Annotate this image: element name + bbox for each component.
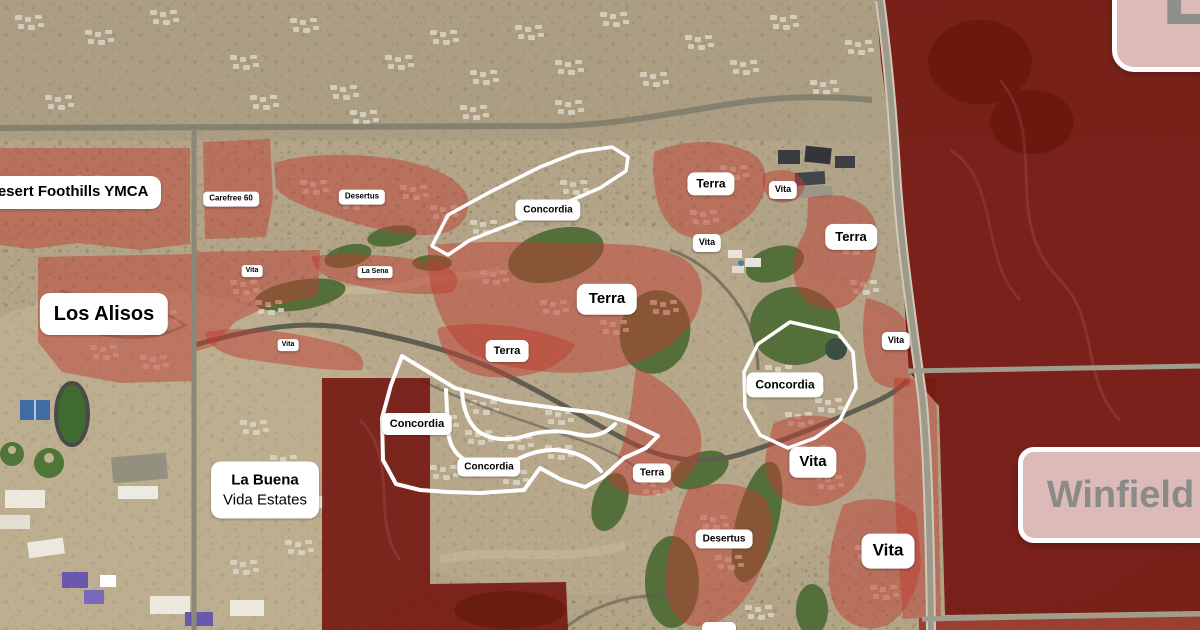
label-vita-south-upper: Vita — [789, 447, 836, 478]
partial-community-letter: B — [1161, 0, 1200, 47]
label-terra-central: Terra — [577, 284, 637, 315]
label-los-alisos: Los Alisos — [40, 293, 168, 335]
label-terra-south: Terra — [633, 464, 671, 483]
label-desertus-south: Desertus — [696, 530, 753, 549]
partial-community-box-topright: B — [1112, 0, 1200, 72]
label-concordia-east: Concordia — [746, 372, 823, 397]
label-vita-east: Vita — [882, 332, 910, 350]
label-terra-north: Terra — [687, 172, 734, 195]
label-la-buena-vida-estates: La Buena Vida Estates — [211, 462, 319, 519]
label-vita-tiny-west: Vita — [242, 265, 263, 277]
label-vita-mid: Vita — [693, 234, 721, 252]
la-buena-line2: Vida Estates — [223, 490, 307, 510]
label-partial-bottom — [702, 622, 736, 630]
label-desertus-north: Desertus — [339, 190, 385, 205]
label-vita-south-lower: Vita — [862, 534, 915, 569]
label-terra-west: Terra — [486, 340, 529, 362]
winfield-community-box: Winfield — [1018, 447, 1200, 543]
label-carefree-60: Carefree 60 — [203, 192, 259, 207]
satellite-map: Desert Foothills YMCA Los Alisos Carefre… — [0, 0, 1200, 630]
label-concordia-inner: Concordia — [457, 458, 520, 477]
label-desert-foothills-ymca: Desert Foothills YMCA — [0, 176, 161, 209]
label-la-sena: La Sena — [358, 266, 393, 278]
label-vita-north: Vita — [769, 181, 797, 199]
label-concordia-west: Concordia — [382, 413, 452, 435]
winfield-label: Winfield — [1047, 474, 1194, 517]
label-concordia-north: Concordia — [515, 200, 580, 221]
label-terra-east: Terra — [825, 224, 877, 250]
la-buena-line1: La Buena — [223, 471, 307, 491]
label-vita-tiny-mid: Vita — [278, 339, 299, 351]
